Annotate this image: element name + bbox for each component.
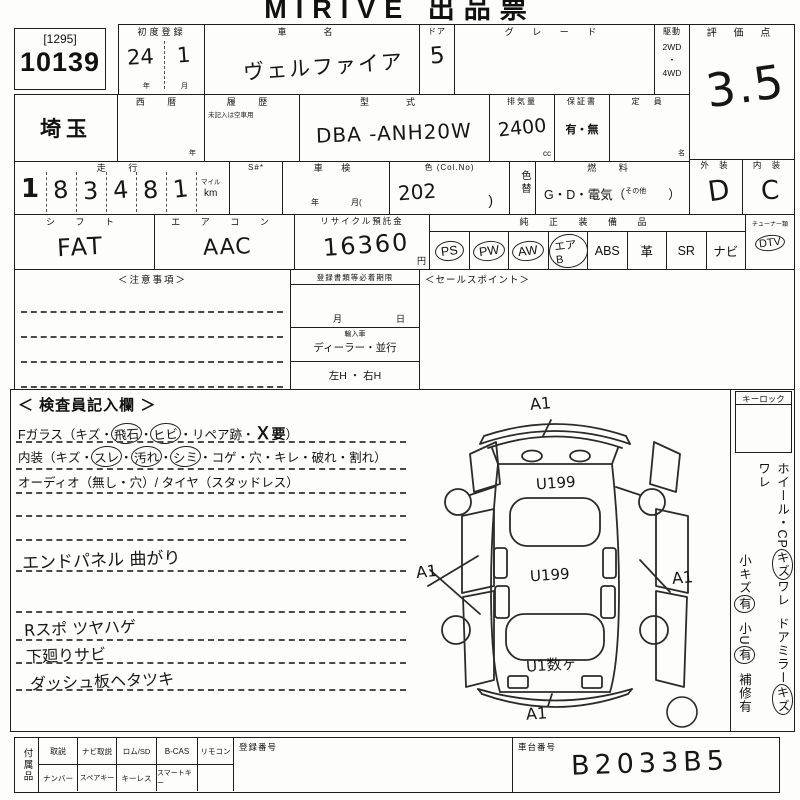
acc-smart-key: スマートキー [157, 765, 198, 791]
tuner-label: チューナー類 [746, 219, 794, 228]
color-box: 色 (Col.No) 202 ) [389, 161, 510, 215]
bottom-table: 付属品 取説 ナビ取説 ロム/SD B-CAS リモコン ナンバー スペアキー … [14, 737, 780, 793]
mileage-digit: 1 [172, 174, 190, 203]
import-label: 輸入車 [291, 329, 419, 339]
tuner-value: DTV [754, 233, 786, 253]
aircon-box: エ ア コ ン AAC [154, 214, 295, 270]
region-box: 埼玉 [14, 94, 118, 162]
acc-number-plate: ナンバー [39, 765, 78, 791]
damage-right: A1 [671, 567, 694, 588]
mileage-digit: 8 [142, 176, 159, 205]
divider [291, 361, 419, 362]
dashed-line [16, 662, 406, 664]
equip-navi: ナビ [707, 232, 746, 269]
recycle-unit: 円 [417, 254, 426, 267]
month-unit: 月 [181, 81, 188, 91]
lot-series: [1295] [15, 32, 105, 46]
docs-header: 登録書類等必着期限 [291, 270, 419, 285]
divider [196, 172, 197, 212]
divider [76, 172, 77, 212]
door-box: ドア 5 [419, 24, 455, 95]
accessories-label: 付属品 [20, 748, 34, 783]
page-title: MIRIVE 出品票 [0, 0, 800, 26]
dashed-line [16, 468, 406, 470]
door-value: 5 [429, 42, 446, 69]
dashed-line [21, 311, 283, 313]
fuel-label: 燃 料 [536, 163, 689, 173]
drive-label: 駆動 [655, 27, 689, 36]
registration-label: 登録番号 [239, 741, 277, 753]
capacity-box: 定 員 名 [609, 94, 690, 162]
year-unit: 年 [143, 81, 150, 91]
drive-4wd: 4WD [663, 68, 682, 78]
first-registration-label: 初度登録 [119, 27, 204, 37]
sales-point-label: ＜セールスポイント＞ [425, 272, 530, 286]
color-change-box: 色替 [509, 161, 536, 215]
shaken-year-unit: 年 [311, 197, 319, 208]
score-label: 評 価 点 [690, 28, 794, 40]
color-value: 202 [397, 179, 437, 206]
lot-number: 10139 [15, 47, 105, 78]
shaken-box: 車 検 年 月( [282, 161, 390, 215]
dashed-line [16, 570, 406, 572]
score-value: 3.5 [703, 54, 789, 118]
drive-sep: ・ [668, 55, 677, 65]
dashed-line [16, 492, 406, 494]
recycle-label: リサイクル預託金 [295, 217, 429, 227]
divider [164, 41, 165, 89]
equip-airbag: エアB [549, 232, 589, 269]
region-value: 埼玉 [15, 113, 117, 143]
shift-label: シ フ ト [15, 217, 154, 227]
equip-aw: AW [509, 232, 549, 269]
chassis-value: B2033B5 [571, 745, 730, 781]
first-reg-month: 1 [176, 43, 191, 68]
shift-box: シ フ ト FAT [14, 214, 155, 270]
damage-bottom: A1 [525, 703, 547, 723]
damage-left: A1 [415, 561, 438, 582]
grade-box: グ レ ー ド [454, 24, 655, 95]
dashed-line [16, 689, 406, 691]
displacement-value: 2400 [497, 115, 547, 142]
exterior-value: D [706, 173, 732, 209]
recycle-box: リサイクル預託金 16360 円 [294, 214, 430, 270]
notes-label: ＜注意事項＞ [15, 272, 290, 286]
dashed-line [16, 441, 406, 443]
equip-ps: PS [430, 232, 470, 269]
warranty-options: 有・無 [555, 121, 609, 137]
displacement-box: 排気量 2400 cc [489, 94, 555, 162]
side-notes: ホイール・CPキズワレドアミラーキズワレ 小キズ有小U有補修有 [738, 462, 792, 728]
shift-value: FAT [56, 232, 104, 262]
score-box: 評 価 点 3.5 [689, 24, 795, 160]
fuel-close-paren: ） [668, 188, 681, 202]
keylock-header: キーロック [735, 391, 792, 405]
exterior-box: 外 装 D [689, 159, 743, 215]
divider [46, 172, 47, 212]
grade-label: グ レ ー ド [455, 27, 654, 37]
color-label: 色 (Col.No) [390, 163, 509, 172]
seireki-unit: 年 [189, 148, 196, 158]
acc-bcas: B-CAS [157, 738, 198, 765]
shaken-month-unit: 月( [351, 197, 362, 208]
divider [291, 327, 419, 328]
divider [166, 172, 167, 212]
docs-month: 月 [333, 312, 342, 325]
serial-label: S#* [230, 163, 282, 172]
damage-roof: U199 [529, 565, 570, 586]
equip-pw: PW [470, 232, 510, 269]
car-name-value: ヴェルファイア [242, 45, 405, 86]
mileage-digit: 3 [82, 177, 99, 206]
chassis-label: 車台番号 [518, 741, 556, 753]
inspector-header: ＜ 検査員記入欄 ＞ [18, 394, 156, 415]
sales-point-box: ＜セールスポイント＞ [419, 269, 795, 390]
mileage-digit: 1 [21, 174, 39, 204]
first-reg-year: 24 [126, 44, 154, 69]
warranty-label: 保証書 [555, 97, 609, 106]
keylock-box [735, 404, 792, 453]
damage-hood: U199 [535, 473, 576, 494]
equip-leather: 革 [628, 232, 668, 269]
acc-manual: 取説 [39, 738, 78, 765]
mileage-digit: 8 [52, 176, 69, 205]
divider [106, 172, 107, 212]
equipment-label: 純 正 装 備 品 [430, 217, 745, 227]
divider [730, 390, 731, 731]
dashed-line [16, 515, 406, 517]
exterior-label: 外 装 [690, 161, 742, 171]
divider [136, 172, 137, 212]
tuner-box: チューナー類 DTV [745, 214, 795, 270]
model-label: 型 式 [300, 97, 489, 107]
car-diagram [420, 390, 730, 732]
displacement-label: 排気量 [490, 97, 554, 106]
aircon-label: エ ア コ ン [155, 217, 294, 227]
steering-options: 左H ・ 右H [291, 368, 419, 383]
equip-sr: SR [667, 232, 707, 269]
interior-box: 内 装 C [742, 159, 795, 215]
notes-box: ＜注意事項＞ [14, 269, 291, 390]
dashed-line [21, 336, 283, 338]
interior-value: C [760, 175, 780, 206]
damage-front: A1 [529, 393, 552, 414]
dashed-line [16, 611, 406, 613]
aircon-value: AAC [203, 234, 253, 261]
fuel-options: G・D・電気（ [544, 188, 625, 202]
color-paren: ) [488, 192, 493, 208]
equipment-box: 純 正 装 備 品 PS PW AW エアB ABS 革 SR ナビ [429, 214, 746, 270]
import-options: ディーラー・並行 [291, 340, 419, 355]
interior-label: 内 装 [743, 161, 794, 171]
mileage-box: 走 行 1 8 3 4 8 1 マイル km [14, 161, 230, 215]
auction-sheet: MIRIVE 出品票 [1295] 10139 初度登録 24 1 年 月 車 … [0, 0, 800, 800]
rireki-label: 履 歴 [205, 97, 299, 107]
damage-rear: U1数ヶ [525, 652, 577, 676]
docs-box: 登録書類等必着期限 月 日 輸入車 ディーラー・並行 左H ・ 右H [290, 269, 420, 390]
seireki-box: 西 暦 年 [117, 94, 205, 162]
rireki-box: 履 歴 未記入は空車用 [204, 94, 300, 162]
side-note-wheel: ホイール・CPキズワレドアミラーキズワレ [754, 462, 792, 728]
acc-spare-key: スペアキー [78, 765, 117, 791]
acc-keyless: キーレス [117, 765, 157, 791]
audio-line: オーディオ（無し・穴）/ タイヤ（スタッドレス） [18, 472, 299, 491]
mileage-digit: 4 [112, 175, 130, 204]
color-change-label: 色替 [517, 170, 532, 196]
displacement-unit: cc [543, 149, 551, 158]
side-note-minor: 小キズ有小U有補修有 [735, 462, 754, 728]
lot-box: [1295] 10139 [14, 28, 106, 90]
acc-empty [198, 765, 234, 791]
mileage-unit-mile: マイル [201, 176, 221, 186]
capacity-label: 定 員 [610, 97, 689, 106]
interior-line: 内装（キズ・スレ・汚れ・シミ・コゲ・穴・キレ・破れ・割れ） [18, 446, 387, 467]
car-name-box: 車 名 ヴェルファイア [204, 24, 420, 95]
acc-rom-sd: ロム/SD [117, 738, 157, 765]
recycle-value: 16360 [322, 228, 410, 262]
first-registration-box: 初度登録 24 1 年 月 [118, 24, 205, 95]
dashed-line [16, 539, 406, 541]
serial-box: S#* [229, 161, 283, 215]
fuel-other: その他 [625, 188, 646, 195]
acc-remote: リモコン [198, 738, 234, 765]
model-box: 型 式 DBA -ANH20W [299, 94, 490, 162]
capacity-unit: 名 [678, 148, 685, 158]
model-value: DBA -ANH20W [316, 118, 473, 147]
inspector-note-2: Rスポ ツヤハゲ [24, 613, 137, 641]
mileage-unit-km: km [204, 188, 217, 199]
drive-box: 駆動 2WD ・ 4WD [654, 24, 690, 95]
acc-navi-manual: ナビ取説 [78, 738, 117, 765]
rireki-note: 未記入は空車用 [208, 109, 254, 119]
door-label: ドア [420, 27, 454, 36]
fuel-box: 燃 料 G・D・電気（その他） [535, 161, 690, 215]
drive-2wd: 2WD [663, 42, 682, 52]
docs-day: 日 [396, 312, 405, 325]
equip-abs: ABS [588, 232, 628, 269]
car-diagram-area: A1 U199 U199 U1数ヶ A1 A1 A1 [420, 390, 730, 732]
dashed-line [21, 361, 283, 363]
car-name-label: 車 名 [205, 27, 419, 37]
warranty-box: 保証書 有・無 [554, 94, 610, 162]
seireki-label: 西 暦 [118, 97, 204, 107]
shaken-label: 車 検 [283, 163, 389, 173]
dashed-line [21, 386, 283, 388]
